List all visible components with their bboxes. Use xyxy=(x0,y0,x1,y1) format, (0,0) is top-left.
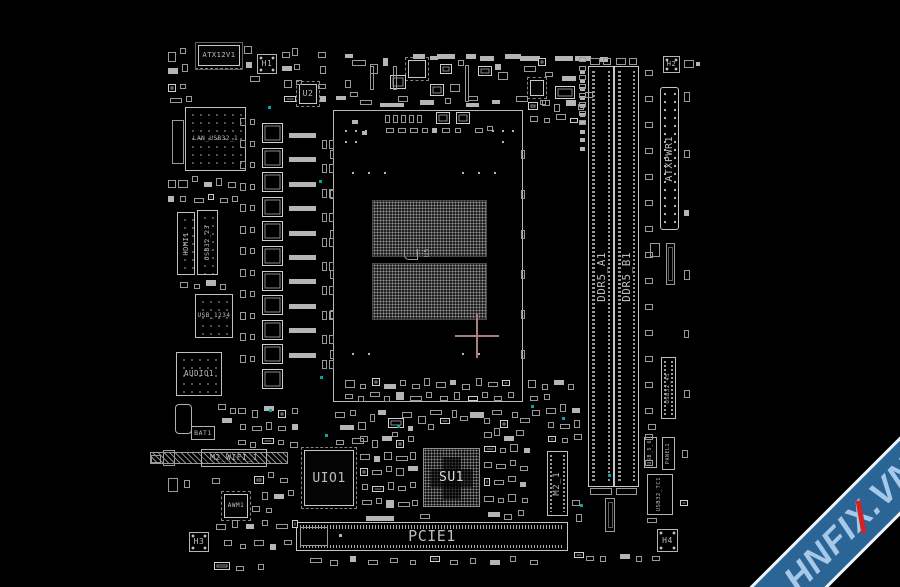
component-rect xyxy=(475,128,483,133)
component-rect xyxy=(516,96,528,102)
component-rect xyxy=(436,112,450,124)
pad-column xyxy=(240,183,246,191)
cap-pad xyxy=(329,140,334,149)
pad-column xyxy=(645,226,653,232)
component-rect xyxy=(574,434,582,440)
component-rect xyxy=(400,380,406,386)
component-rect xyxy=(366,516,394,521)
component-rect xyxy=(392,432,398,437)
component-rect xyxy=(240,424,246,430)
indicator-dot xyxy=(319,180,322,183)
component-rect xyxy=(524,66,536,72)
component-rect xyxy=(232,196,238,202)
component-rect xyxy=(220,198,228,203)
pad-column xyxy=(645,278,653,284)
component-rect xyxy=(462,384,470,390)
cpu-pinfield-bottom xyxy=(372,263,487,320)
component-rect xyxy=(252,426,262,431)
component-rect xyxy=(218,404,226,410)
mount-hole-h3: H3 xyxy=(189,532,209,552)
component-rect xyxy=(296,80,302,85)
component-rect xyxy=(465,65,469,102)
vrm-stage xyxy=(262,197,283,217)
component-rect xyxy=(680,500,688,506)
component-rect xyxy=(572,500,580,506)
component-rect xyxy=(456,112,470,124)
ddr5-a1-slot: DDR5_A1 xyxy=(588,66,614,487)
component-rect xyxy=(410,396,422,401)
component-rect xyxy=(376,498,382,504)
component-rect xyxy=(402,412,412,418)
component-rect xyxy=(352,120,358,124)
component-rect xyxy=(284,80,292,88)
component-rect xyxy=(410,560,416,565)
component-rect xyxy=(652,556,660,561)
component-rect xyxy=(616,488,637,495)
component-rect xyxy=(546,408,556,414)
component-rect xyxy=(262,438,274,444)
cpu-socket-notch xyxy=(404,249,418,260)
hdmi1-connector: HDMI1 xyxy=(177,212,195,275)
pad-column xyxy=(645,174,653,180)
pad-column xyxy=(250,119,255,125)
vrm-stage xyxy=(262,295,283,315)
component-rect xyxy=(420,514,430,519)
component-rect xyxy=(568,384,574,390)
component-rect xyxy=(410,452,416,460)
component-rect xyxy=(278,410,286,418)
component-rect xyxy=(476,378,482,386)
component-rect xyxy=(468,96,478,101)
pad-column xyxy=(250,248,255,254)
component-rect xyxy=(384,384,396,389)
audio1-connector: AUDIO1 xyxy=(176,352,222,396)
component-rect xyxy=(562,438,568,443)
ddr5-b1-slot-label: DDR5_B1 xyxy=(621,252,632,302)
component-rect xyxy=(648,424,656,430)
component-rect xyxy=(250,442,256,448)
component-rect xyxy=(508,494,516,502)
component-rect xyxy=(274,494,284,499)
component-rect xyxy=(500,448,506,453)
component-rect xyxy=(450,84,460,92)
component-rect xyxy=(336,440,344,445)
cpu-refdes-u5-label: U5 xyxy=(424,248,431,257)
component-rect xyxy=(508,392,514,398)
component-rect xyxy=(570,118,578,123)
component-rect xyxy=(494,428,500,436)
component-rect xyxy=(246,62,252,68)
component-rect xyxy=(504,436,514,441)
choke-bar xyxy=(289,304,316,309)
component-rect xyxy=(252,506,260,512)
component-rect xyxy=(290,442,298,448)
component-rect xyxy=(482,392,488,398)
component-rect xyxy=(560,424,570,429)
component-rect xyxy=(603,58,611,65)
component-rect xyxy=(555,56,573,61)
component-rect xyxy=(410,128,418,133)
component-rect xyxy=(383,58,388,66)
component-rect xyxy=(270,544,276,550)
mount-hole-h1: H1 xyxy=(257,54,277,74)
component-rect xyxy=(238,440,246,445)
component-rect xyxy=(408,436,414,442)
component-rect xyxy=(554,104,560,112)
bat1-label-box: BAT1 xyxy=(191,426,215,440)
choke-bar xyxy=(289,279,316,284)
component-rect xyxy=(254,476,264,484)
component-rect xyxy=(390,558,398,563)
usb32-tc1-header-label: USB32_TC1 xyxy=(657,477,663,511)
component-rect xyxy=(495,64,501,70)
component-rect xyxy=(548,422,554,428)
hdmi1-connector-label: HDMI1 xyxy=(183,232,190,256)
component-rect xyxy=(466,103,479,107)
component-rect xyxy=(320,66,326,74)
cap-pad xyxy=(329,286,334,295)
cpu-refdes-u5: U5 xyxy=(421,246,433,260)
component-rect xyxy=(480,56,494,61)
component-rect xyxy=(168,84,176,92)
component-rect xyxy=(530,560,538,565)
component-rect xyxy=(544,118,550,123)
component-rect xyxy=(228,182,236,188)
component-rect xyxy=(194,284,200,289)
component-rect xyxy=(420,100,434,105)
indicator-dot xyxy=(269,409,272,412)
choke-bar xyxy=(289,328,316,333)
component-rect xyxy=(384,396,390,402)
component-rect xyxy=(396,456,408,461)
indicator-dot xyxy=(531,405,534,408)
m2-wifi-1-slot-label: M2_WIFI_1 xyxy=(210,454,258,462)
socket-edge-tab xyxy=(330,230,334,239)
component-rect xyxy=(244,46,252,54)
choke-bar xyxy=(289,157,316,162)
component-rect xyxy=(636,556,642,562)
crosshair-marker xyxy=(455,314,499,358)
chip-awm1-label: AWM1 xyxy=(228,503,244,509)
component-rect xyxy=(500,420,508,428)
component-rect xyxy=(484,432,492,438)
component-rect xyxy=(544,394,550,400)
component-rect xyxy=(370,66,374,90)
component-rect xyxy=(276,524,288,529)
component-rect xyxy=(180,48,186,54)
pad-column xyxy=(250,184,255,190)
component-rect xyxy=(330,560,338,566)
socket-edge-tab xyxy=(330,310,334,319)
component-rect xyxy=(494,172,496,174)
component-rect xyxy=(240,544,246,549)
component-rect xyxy=(502,141,504,143)
pad-column xyxy=(645,408,653,414)
vrm-stage xyxy=(262,344,283,364)
component-rect xyxy=(224,540,232,546)
component-rect xyxy=(184,480,190,488)
component-rect xyxy=(590,58,600,65)
component-rect xyxy=(401,115,406,123)
component-rect xyxy=(462,353,464,355)
usb-1234-connector-label: USB_1234 xyxy=(198,313,231,319)
pad-column xyxy=(250,356,255,362)
component-rect xyxy=(266,508,272,513)
component-rect xyxy=(300,527,328,546)
component-rect xyxy=(450,560,458,565)
component-rect xyxy=(250,76,260,82)
pad-column xyxy=(240,161,246,169)
component-rect xyxy=(455,128,461,133)
pad-column xyxy=(579,93,586,98)
pad-column xyxy=(579,57,586,62)
component-rect xyxy=(512,412,518,418)
component-rect xyxy=(388,482,394,490)
component-rect xyxy=(278,426,286,431)
component-rect xyxy=(470,558,476,564)
component-rect xyxy=(384,172,386,174)
component-rect xyxy=(542,384,548,390)
pad-column xyxy=(240,355,246,363)
component-rect xyxy=(409,115,414,123)
component-rect xyxy=(350,92,358,97)
component-rect xyxy=(555,86,575,99)
component-rect xyxy=(520,418,530,423)
component-rect xyxy=(494,396,502,401)
component-rect xyxy=(252,410,258,418)
component-rect xyxy=(192,176,198,182)
component-rect xyxy=(216,178,222,186)
usb32-45-header-label: USB32_45 xyxy=(666,373,672,404)
component-rect xyxy=(262,520,268,526)
choke-bar xyxy=(289,182,316,187)
component-rect xyxy=(522,498,528,503)
component-rect xyxy=(345,394,353,399)
component-rect xyxy=(608,502,613,528)
component-rect xyxy=(398,128,406,133)
component-rect xyxy=(339,534,342,537)
chip-awm1: AWM1 xyxy=(224,494,248,518)
component-rect xyxy=(345,141,347,143)
component-rect xyxy=(254,540,264,546)
atxpwr1-connector-label: ATXPWR1 xyxy=(665,136,675,182)
component-rect xyxy=(508,476,516,482)
component-rect xyxy=(294,64,300,70)
pad-column xyxy=(240,140,246,148)
component-rect xyxy=(574,552,584,558)
component-rect xyxy=(520,482,526,487)
component-rect xyxy=(398,502,410,507)
component-rect xyxy=(208,194,214,200)
component-rect xyxy=(232,520,238,528)
cap-pad xyxy=(329,164,334,173)
component-rect xyxy=(398,486,406,491)
component-rect xyxy=(352,438,364,444)
component-rect xyxy=(684,92,690,102)
component-rect xyxy=(488,382,498,387)
component-rect xyxy=(502,380,510,386)
choke-bar xyxy=(289,133,316,138)
cap-pad xyxy=(322,238,327,247)
indicator-dot xyxy=(268,106,271,109)
component-rect xyxy=(396,468,404,476)
chip-u2: U2 xyxy=(299,84,317,104)
component-rect xyxy=(422,128,428,133)
socket-edge-tab xyxy=(330,150,334,159)
pcie1-slot-label: PCIE1 xyxy=(408,529,456,544)
component-rect xyxy=(393,115,398,123)
pad-column xyxy=(250,270,255,276)
socket-edge-tab xyxy=(330,350,334,359)
mount-hole-h2: H2 xyxy=(663,56,680,73)
component-rect xyxy=(524,448,530,453)
component-rect xyxy=(292,424,298,430)
component-rect xyxy=(382,436,392,441)
component-rect xyxy=(386,466,392,472)
cap-pad xyxy=(329,360,334,369)
component-rect xyxy=(258,564,264,570)
pad-column xyxy=(645,460,653,466)
vrm-stage xyxy=(262,271,283,291)
component-rect xyxy=(585,92,593,98)
component-rect xyxy=(574,420,580,428)
component-rect xyxy=(266,422,272,430)
component-rect xyxy=(502,130,504,132)
component-rect xyxy=(368,560,378,565)
component-rect xyxy=(424,378,430,386)
component-rect xyxy=(320,96,326,102)
component-rect xyxy=(380,103,404,107)
pad-column xyxy=(579,84,586,89)
component-rect xyxy=(528,380,536,388)
indicator-dot xyxy=(325,434,328,437)
component-rect xyxy=(466,54,476,59)
usb32-23-connector: USB32_23 xyxy=(197,210,218,275)
component-rect xyxy=(384,452,392,460)
choke-bar xyxy=(289,353,316,358)
component-rect xyxy=(206,280,216,286)
vrm-stage xyxy=(262,320,283,340)
component-rect xyxy=(494,480,504,485)
pad-column xyxy=(250,227,255,233)
indicator-dot xyxy=(580,504,583,507)
component-rect xyxy=(168,68,178,74)
component-rect xyxy=(417,115,422,123)
component-rect xyxy=(490,560,500,565)
pad-column xyxy=(240,226,246,234)
choke-bar xyxy=(289,255,316,260)
pad-column xyxy=(250,291,255,297)
indicator-dot xyxy=(397,425,400,428)
component-rect xyxy=(542,100,550,106)
component-rect xyxy=(180,282,188,288)
pad-column xyxy=(645,356,653,362)
component-rect xyxy=(362,484,368,490)
pad-column xyxy=(645,382,653,388)
component-rect xyxy=(484,418,490,424)
vrm-stage xyxy=(262,221,283,241)
component-rect xyxy=(512,130,514,132)
pad-column xyxy=(240,290,246,298)
component-rect xyxy=(355,141,357,143)
component-rect xyxy=(684,210,689,216)
component-rect xyxy=(368,172,370,174)
panel1-header: PANEL1 xyxy=(662,437,675,470)
component-rect xyxy=(172,120,184,164)
component-rect xyxy=(170,98,182,103)
component-rect xyxy=(668,247,673,281)
component-rect xyxy=(566,100,576,106)
component-rect xyxy=(492,410,502,415)
pad-column xyxy=(240,269,246,277)
choke-bar xyxy=(289,231,316,236)
component-rect xyxy=(600,556,606,562)
component-rect xyxy=(620,554,630,559)
pad-column xyxy=(250,141,255,147)
cap-pad xyxy=(322,189,327,198)
component-rect xyxy=(262,492,268,500)
component-rect xyxy=(220,284,226,290)
component-rect xyxy=(440,64,452,74)
component-rect xyxy=(454,392,460,400)
pad-column xyxy=(580,147,585,151)
pad-column xyxy=(645,330,653,336)
component-rect xyxy=(360,384,366,389)
component-rect xyxy=(372,470,382,475)
cap-pad xyxy=(322,286,327,295)
cap-pad xyxy=(322,311,327,320)
component-rect xyxy=(484,446,496,452)
component-rect xyxy=(168,196,174,202)
component-rect xyxy=(345,130,347,132)
m2-wifi-1-slot: M2_WIFI_1 xyxy=(201,449,267,467)
pad-column xyxy=(645,148,653,154)
component-rect xyxy=(216,524,226,530)
indicator-dot xyxy=(320,376,323,379)
component-rect xyxy=(532,410,540,416)
component-rect xyxy=(412,384,420,389)
component-rect xyxy=(280,478,288,483)
component-rect xyxy=(450,380,456,385)
component-rect xyxy=(282,52,290,58)
component-rect xyxy=(345,54,353,58)
component-rect xyxy=(386,128,394,133)
component-rect xyxy=(178,180,188,188)
battery-outline xyxy=(175,404,192,434)
socket-edge-tab xyxy=(521,230,525,239)
component-rect xyxy=(682,450,688,458)
component-rect xyxy=(410,482,416,488)
component-rect xyxy=(222,418,232,423)
component-rect xyxy=(396,392,404,400)
component-rect xyxy=(484,496,494,502)
component-rect xyxy=(684,150,690,158)
component-rect xyxy=(510,444,518,452)
component-rect xyxy=(362,500,372,505)
pcie1-slot: PCIE1 xyxy=(296,522,568,551)
indicator-dot xyxy=(562,417,565,420)
component-rect xyxy=(576,514,582,522)
chip-top-2 xyxy=(530,80,544,96)
vrm-stage xyxy=(262,369,283,389)
component-rect xyxy=(398,96,408,102)
socket-edge-tab xyxy=(330,270,334,279)
mount-hole-h2-label: H2 xyxy=(667,61,676,68)
component-rect xyxy=(590,488,612,495)
vrm-stage xyxy=(262,172,283,192)
component-rect xyxy=(230,408,236,414)
component-rect xyxy=(318,84,326,89)
